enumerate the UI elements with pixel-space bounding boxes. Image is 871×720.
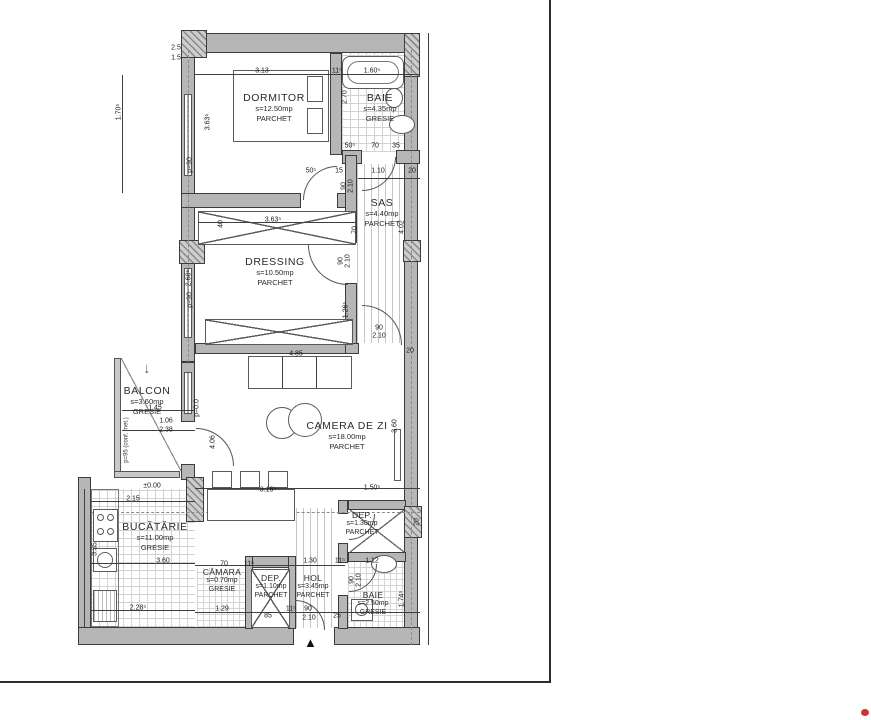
chair-2 [240,471,260,488]
dim-label: 2.68⁵ [186,270,193,287]
kitchen-sink-basin [97,552,113,568]
dim-label: 40 [218,220,225,228]
wall-bath1-bottom-right [396,150,420,164]
dim-line-kitchen-top [91,501,195,502]
dim-label: 90 [304,606,312,613]
dim-label: 3.13 [255,68,269,75]
dim-label: 11⁵ [244,561,254,568]
dim-label: 70 [220,561,228,568]
dim-label: 4.06 [210,435,217,449]
pier-kitchen-living [186,477,204,522]
room-label-baie-1: BAIEs=4.35mpGRESIE [363,92,396,123]
dining-table [207,489,295,521]
dim-label: p=95 (conf. met.) [124,417,131,463]
stove-burner-1 [97,514,104,521]
dim-label: 2.5 [171,45,181,52]
dim-label: 3.35 [92,542,99,556]
wall-bedroom-bottom-left [181,193,301,208]
room-label-camara: CĂMARAs=0.70mpGRESIE [203,567,241,594]
dim-line-right-overall [428,33,429,645]
dim-line-kitchen-left [84,489,85,627]
dim-label: p=90 [187,292,194,308]
room-label-dep-1: DEP.s=1.10mpPARCHET [255,573,288,600]
room-label-dep-2: DEP.s=1.30mpPARCHET [346,510,379,537]
dim-label: 1.30 [303,558,317,565]
dim-label: 3.60 [392,419,399,433]
dim-label: 90 [349,576,356,584]
sofa-cushion-line-1 [282,357,283,388]
wall-bottom-right [334,627,420,645]
dim-label: 11⁵ [332,68,342,75]
dim-label: 2.28⁵ [130,605,147,612]
dim-label: 11⁵ [335,558,345,565]
dim-line-kitchen-mid [91,563,195,564]
dim-label: 20 [406,348,414,355]
sofa [248,356,352,389]
dim-label: 11⁵ [286,606,296,613]
dim-label: 1.10 [371,168,385,175]
balcony-parapet-bottom [114,471,180,478]
dim-label: 2.10 [345,254,352,268]
pillow-2 [307,108,323,134]
dim-label: 15 [335,168,343,175]
dim-label: 2.10 [302,615,316,622]
pier-right-middle [403,240,421,262]
balcony-parapet-left [114,358,121,478]
room-label-hol: HOLs=3.45mpPARCHET [297,573,330,600]
dim-line-left-bedroom [122,75,123,193]
dim-label: 1.06 [159,418,173,425]
dim-label: 1.29 [215,606,229,613]
chair-1 [212,471,232,488]
dim-label: 3.63⁵ [205,114,212,131]
room-label-baie-2: BAIEs=2.50mpGRESIE [358,590,389,617]
chair-3 [268,471,288,488]
dim-label: 2.38 [159,427,173,434]
wall-top [183,33,420,53]
stove [93,509,118,542]
tv-unit [394,429,401,481]
balcony-direction-arrow-icon: ↓ [143,360,151,377]
dim-label: 4.02 [399,220,406,234]
dim-label: 1.60⁵ [364,68,381,75]
pier-top-right [404,33,420,77]
dim-line-sas-top [358,178,420,179]
dim-label: 20 [414,518,421,526]
dim-label: 20 [408,168,416,175]
dim-label: 1.12 [365,558,379,565]
pier-top-left [181,30,207,58]
sheet-frame-vertical [549,0,551,683]
stove-burner-2 [107,514,114,521]
floor-plan: ↓ ▲ DORMITORs=12.50mpPARCHETBAIEs=4.35mp… [0,0,871,720]
dim-label: p=90 [187,157,194,173]
pillow-1 [307,76,323,102]
dim-label: 35 [392,143,400,150]
sheet-frame-horizontal [0,681,551,683]
dim-line-pantry-top [195,565,345,566]
dim-label: 2.10 [348,179,355,193]
dim-line-living-bottom [195,488,420,489]
dim-label: 50⁵ [345,143,356,150]
dim-label: 70 [371,143,379,150]
room-label-bucatarie: BUCĂTĂRIEs=11.00mpGRESIE [122,521,188,552]
dim-label: 50⁵ [306,168,317,175]
fridge [93,590,117,622]
entrance-marker-icon: ▲ [304,636,317,649]
dim-line-top [195,74,420,75]
dim-label: 1.45 [148,405,162,412]
wall-bottom-left [78,627,294,645]
dim-label: 85 [264,613,272,620]
sofa-cushion-line-2 [316,357,317,388]
dim-label: 70 [352,226,359,234]
room-label-dormitor: DORMITORs=12.50mpPARCHET [243,92,305,123]
dim-label: 90 [338,257,345,265]
dim-label: 3.60 [156,558,170,565]
dim-label: 3.16⁵ [260,487,277,494]
dim-label: 2.10 [372,333,386,340]
dim-label: p=0.0 [194,399,201,417]
stove-burner-4 [107,528,114,535]
room-label-dressing: DRESSINGs=10.50mpPARCHET [245,256,305,287]
dim-label: 2.15 [126,496,140,503]
dim-label: 1.5 [171,55,181,62]
door-dressing [308,245,348,285]
wall-storage2-top [348,500,406,510]
dim-label: 25 [333,613,341,620]
room-label-balcon: BALCONs=3.60mpGRESIE [124,385,171,416]
dim-label: 2.70 [342,90,349,104]
dim-label: 2.10 [356,573,363,587]
dim-label: 1.74⁵ [399,591,406,608]
stove-burner-3 [97,528,104,535]
centerline-left [188,50,189,362]
window-living-balcony [184,372,192,414]
red-plot-mark [861,709,869,716]
dim-label: 90 [341,182,348,190]
dim-label: 4.85 [289,351,303,358]
room-label-camera-de-zi: CAMERA DE ZIs=18.00mpPARCHET [306,420,387,451]
room-label-sas: SASs=4.40mpPARCHET [364,197,399,228]
dim-label: 90 [375,325,383,332]
dim-label: 1.50⁵ [364,485,381,492]
dim-label: 1.70⁵ [116,104,123,121]
dim-label: 3.63⁵ [265,217,282,224]
dim-label: 1.26⁵ [343,302,350,319]
dim-label: ±0.00 [143,483,160,490]
wardrobe-dressing-bottom [205,319,353,345]
